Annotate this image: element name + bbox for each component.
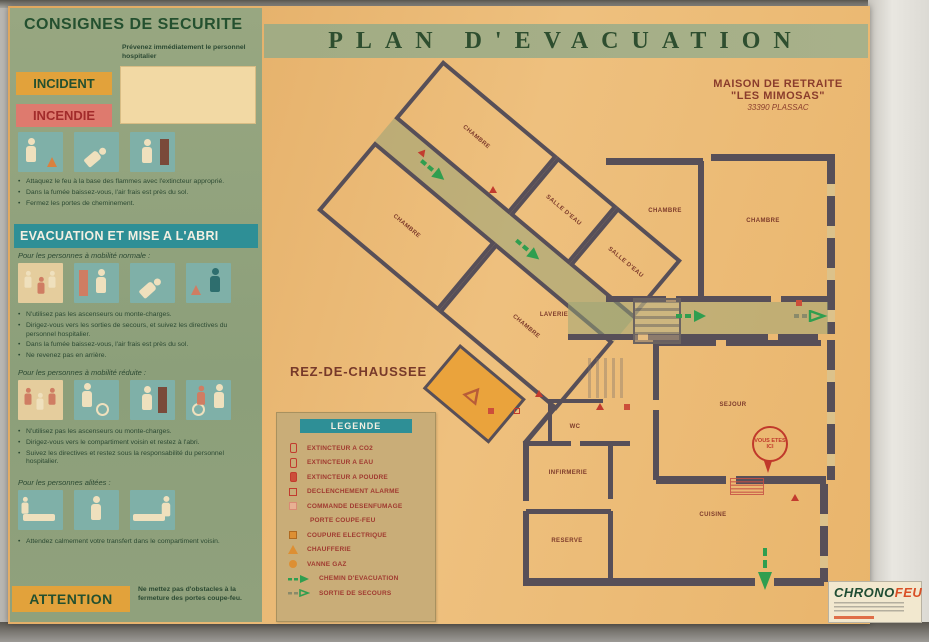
legend-label: EXTINCTEUR A EAU xyxy=(307,459,373,466)
flame-shape xyxy=(191,285,201,295)
pictogram-do-not-return xyxy=(186,263,231,303)
wall xyxy=(726,340,821,346)
legend-item: EXTINCTEUR A CO2 xyxy=(277,441,435,456)
fire-instructions-list: Attaquez le feu à la base des flammes av… xyxy=(18,178,256,210)
mobility-reduced-list: N'utilisez pas les ascenseurs ou monte-c… xyxy=(18,428,258,469)
legend-label: COMMANDE DESENFUMAGE xyxy=(307,503,402,510)
consignes-intro: Prévenez immédiatement le personnel hosp… xyxy=(122,44,252,62)
room-label: CHAMBRE xyxy=(461,124,490,150)
facility-name-block: MAISON DE RETRAITE "LES MIMOSAS" 33390 P… xyxy=(668,78,888,112)
person-figure xyxy=(82,145,108,169)
wall xyxy=(568,334,638,340)
room-label-sejour: SEJOUR xyxy=(698,402,768,408)
wall xyxy=(523,511,529,581)
person-figure xyxy=(197,386,205,407)
gas-valve-icon xyxy=(287,560,299,568)
floor-label: REZ-DE-CHAUSSEE xyxy=(290,364,427,379)
extinguisher-co2-icon xyxy=(287,443,299,453)
warning-triangle-icon xyxy=(462,382,486,406)
pictogram-bed xyxy=(18,490,63,530)
wall xyxy=(580,441,630,446)
person-figure xyxy=(26,138,36,164)
pictogram-close-door xyxy=(130,132,175,172)
alarm-trigger-icon xyxy=(287,488,299,496)
legend-item: COUPURE ELECTRIQUE xyxy=(277,528,435,543)
legend-label: COUPURE ELECTRIQUE xyxy=(307,532,387,539)
wall-with-windows xyxy=(827,154,835,334)
person-figure xyxy=(96,269,106,295)
wheel-shape xyxy=(96,403,109,416)
room-label-laverie: LAVERIE xyxy=(524,312,584,318)
plan-symbol-alarm xyxy=(489,186,497,193)
bedridden-pictogram-row xyxy=(18,490,175,530)
evacuation-sign: CONSIGNES DE SECURITE Prévenez immédiate… xyxy=(8,6,870,624)
person-figure xyxy=(91,496,101,522)
legend-item: EXTINCTEUR A EAU xyxy=(277,456,435,471)
staircase xyxy=(633,298,681,344)
legend-label: CHEMIN D'EVACUATION xyxy=(319,575,399,582)
room-label: CHAMBRE xyxy=(392,213,421,239)
room-label: SALLE D'EAU xyxy=(545,194,583,227)
person-figure xyxy=(82,383,92,409)
legend-title: LEGENDE xyxy=(300,419,412,433)
plan-title: PLAN D'EVACUATION xyxy=(328,28,803,55)
legend-item: CHEMIN D'EVACUATION xyxy=(277,572,435,587)
list-item: Dans la fumée baissez-vous, l'air frais … xyxy=(18,189,256,198)
list-item: Fermez les portes de cheminement. xyxy=(18,200,256,209)
facility-line1: MAISON DE RETRAITE xyxy=(668,78,888,90)
safety-instructions-panel: CONSIGNES DE SECURITE Prévenez immédiate… xyxy=(10,8,262,622)
person-figure xyxy=(38,277,45,295)
person-figure xyxy=(49,271,56,289)
door-shape xyxy=(158,387,167,413)
legend-label: DECLENCHEMENT ALARME xyxy=(307,488,399,495)
power-cutoff-icon xyxy=(287,531,299,539)
person-figure xyxy=(22,497,29,515)
mobility-reduced-label: Pour les personnes à mobilité réduite : xyxy=(18,368,146,377)
exit-arrow xyxy=(794,310,834,322)
wall xyxy=(526,441,571,446)
extinguisher-water-icon xyxy=(287,458,299,468)
bedridden-list: Attendez calmement votre transfert dans … xyxy=(18,538,248,549)
attention-label: ATTENTION xyxy=(12,586,130,612)
room-label-chambre: CHAMBRE xyxy=(723,218,803,224)
manufacturer-logo: CHRONOFEU xyxy=(828,581,922,623)
boiler-room-icon xyxy=(287,545,299,554)
wall-with-windows xyxy=(820,484,828,582)
pictogram-group xyxy=(18,380,63,420)
wall xyxy=(608,511,613,581)
emergency-exit-arrow-icon xyxy=(287,589,311,597)
person-figure xyxy=(210,268,220,294)
pictogram-shelter-room xyxy=(130,380,175,420)
plan-symbol-alarm xyxy=(791,494,799,501)
photo-frame-bottom xyxy=(0,622,929,642)
bedridden-label: Pour les personnes alitées : xyxy=(18,478,111,487)
legend-label: VANNE GAZ xyxy=(307,561,347,568)
mobility-normal-label: Pour les personnes à mobilité normale : xyxy=(18,251,150,260)
hatched-area xyxy=(588,358,628,398)
bed-shape xyxy=(133,514,165,521)
incendie-label: INCENDIE xyxy=(16,104,112,127)
installer-stamp xyxy=(730,478,764,495)
flame-shape xyxy=(47,157,57,167)
legend-item: CHAUFFERIE xyxy=(277,543,435,558)
legend-label: SORTIE DE SECOURS xyxy=(319,590,391,597)
blank-notice-box xyxy=(120,66,256,124)
wall xyxy=(526,509,611,514)
plan-symbol-alarm xyxy=(514,408,520,414)
pictogram-bed-transfer xyxy=(130,490,175,530)
plan-title-band: PLAN D'EVACUATION xyxy=(264,24,868,58)
door-shape xyxy=(160,139,169,165)
wall xyxy=(548,399,603,403)
list-item: N'utilisez pas les ascenseurs ou monte-c… xyxy=(18,311,258,320)
pictogram-wheelchair xyxy=(74,380,119,420)
room-label-chambre: CHAMBRE xyxy=(630,208,700,214)
person-figure xyxy=(25,271,32,289)
mobility-normal-list: N'utilisez pas les ascenseurs ou monte-c… xyxy=(18,311,258,363)
list-item: Dans la fumée baissez-vous, l'air frais … xyxy=(18,341,258,350)
person-figure xyxy=(49,388,56,406)
legend-item: COMMANDE DESENFUMAGE xyxy=(277,499,435,514)
person-figure xyxy=(37,393,44,411)
facility-line3: 33390 PLASSAC xyxy=(668,103,888,112)
pictogram-crouch-in-smoke xyxy=(74,132,119,172)
list-item: N'utilisez pas les ascenseurs ou monte-c… xyxy=(18,428,258,437)
legend-item: PORTE COUPE-FEU xyxy=(277,514,435,529)
room-label-wc: WC xyxy=(560,424,590,430)
logo-text-red: FEU xyxy=(895,585,923,600)
legend-item: VANNE GAZ xyxy=(277,557,435,572)
room-label: SALLE D'EAU xyxy=(607,246,645,279)
incident-label: INCIDENT xyxy=(16,72,112,95)
facility-line2: "LES MIMOSAS" xyxy=(668,90,888,102)
fire-pictogram-row xyxy=(18,132,175,172)
legend-item: SORTIE DE SECOURS xyxy=(277,586,435,601)
wall xyxy=(653,410,659,480)
mobility-normal-pictogram-row xyxy=(18,263,231,303)
legend-label: CHAUFFERIE xyxy=(307,546,351,553)
wall xyxy=(523,578,755,586)
logo-address-lines xyxy=(834,602,904,614)
plan-symbol-extinguisher xyxy=(624,404,630,410)
room-label-reserve: RESERVE xyxy=(532,538,602,544)
evacuation-title: EVACUATION ET MISE A L'ABRI xyxy=(14,224,258,248)
legend-label: EXTINCTEUR A POUDRE xyxy=(307,474,388,481)
person-figure xyxy=(137,276,163,301)
exit-arrow-down xyxy=(758,548,772,592)
plan-symbol-alarm xyxy=(596,403,604,410)
logo-text-green: CHRONO xyxy=(834,585,895,600)
pictogram-extinguish-fire xyxy=(18,132,63,172)
list-item: Attaquez le feu à la base des flammes av… xyxy=(18,178,256,187)
room-label-infirmerie: INFIRMERIE xyxy=(528,470,608,476)
plan-symbol-extinguisher xyxy=(796,300,802,306)
pictogram-no-elevator xyxy=(18,263,63,303)
wall xyxy=(698,161,704,301)
you-are-here-text: VOUS ETES ICI xyxy=(754,438,786,451)
attention-text: Ne mettez pas d'obstacles à la fermeture… xyxy=(138,586,258,604)
wall xyxy=(548,399,552,441)
list-item: Ne revenez pas en arrière. xyxy=(18,352,258,361)
pictogram-assisted-wheelchair xyxy=(186,380,231,420)
wall xyxy=(774,578,824,586)
mobility-reduced-pictogram-row xyxy=(18,380,231,420)
list-item: Attendez calmement votre transfert dans … xyxy=(18,538,248,547)
evacuation-route-arrow-icon xyxy=(287,575,311,583)
you-are-here-marker: VOUS ETES ICI xyxy=(752,426,788,462)
person-figure xyxy=(214,384,224,410)
extinguisher-powder-icon xyxy=(287,472,299,482)
door-shape xyxy=(79,270,88,296)
logo-red-bar xyxy=(834,616,874,619)
pictogram-crouch-low xyxy=(130,263,175,303)
person-figure xyxy=(142,139,152,165)
wall-with-windows xyxy=(827,340,835,480)
legend-item: EXTINCTEUR A POUDRE xyxy=(277,470,435,485)
list-item: Dirigez-vous vers le compartiment voisin… xyxy=(18,439,258,448)
plan-symbol-extinguisher xyxy=(488,408,494,414)
smoke-control-icon xyxy=(287,502,299,510)
room-label-cuisine: CUISINE xyxy=(668,512,758,518)
pictogram-caregiver xyxy=(74,490,119,530)
list-item: Dirigez-vous vers les sorties de secours… xyxy=(18,322,258,340)
wall xyxy=(606,158,703,165)
wall xyxy=(608,444,613,499)
person-figure xyxy=(142,386,152,412)
wall xyxy=(711,154,833,161)
wall xyxy=(656,476,726,484)
consignes-title: CONSIGNES DE SECURITE xyxy=(24,16,243,34)
legend-box: LEGENDE EXTINCTEUR A CO2 EXTINCTEUR A EA… xyxy=(276,412,436,622)
pictogram-follow-exit xyxy=(74,263,119,303)
evacuation-arrow xyxy=(676,310,710,322)
wall xyxy=(653,340,659,400)
legend-label: PORTE COUPE-FEU xyxy=(310,517,375,524)
plan-symbol-alarm xyxy=(535,390,543,397)
legend-label: EXTINCTEUR A CO2 xyxy=(307,445,373,452)
legend-item: DECLENCHEMENT ALARME xyxy=(277,485,435,500)
person-figure xyxy=(162,496,171,518)
person-figure xyxy=(25,388,32,406)
list-item: Suivez les directives et restez sous la … xyxy=(18,450,258,468)
